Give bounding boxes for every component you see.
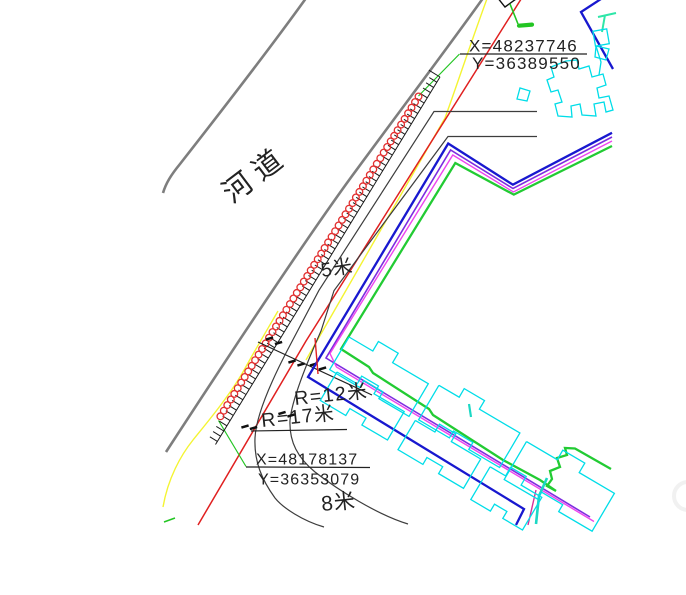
svg-text:Y=36389550: Y=36389550: [472, 54, 581, 73]
svg-text:8米: 8米: [320, 489, 357, 515]
svg-text:X=48178137: X=48178137: [256, 452, 358, 469]
svg-text:X=48237746: X=48237746: [469, 37, 578, 56]
svg-text:Y=36353079: Y=36353079: [258, 472, 360, 489]
svg-text:5米: 5米: [319, 255, 354, 282]
svg-text:R=17米: R=17米: [260, 402, 336, 432]
svg-text:河道: 河道: [216, 139, 295, 210]
